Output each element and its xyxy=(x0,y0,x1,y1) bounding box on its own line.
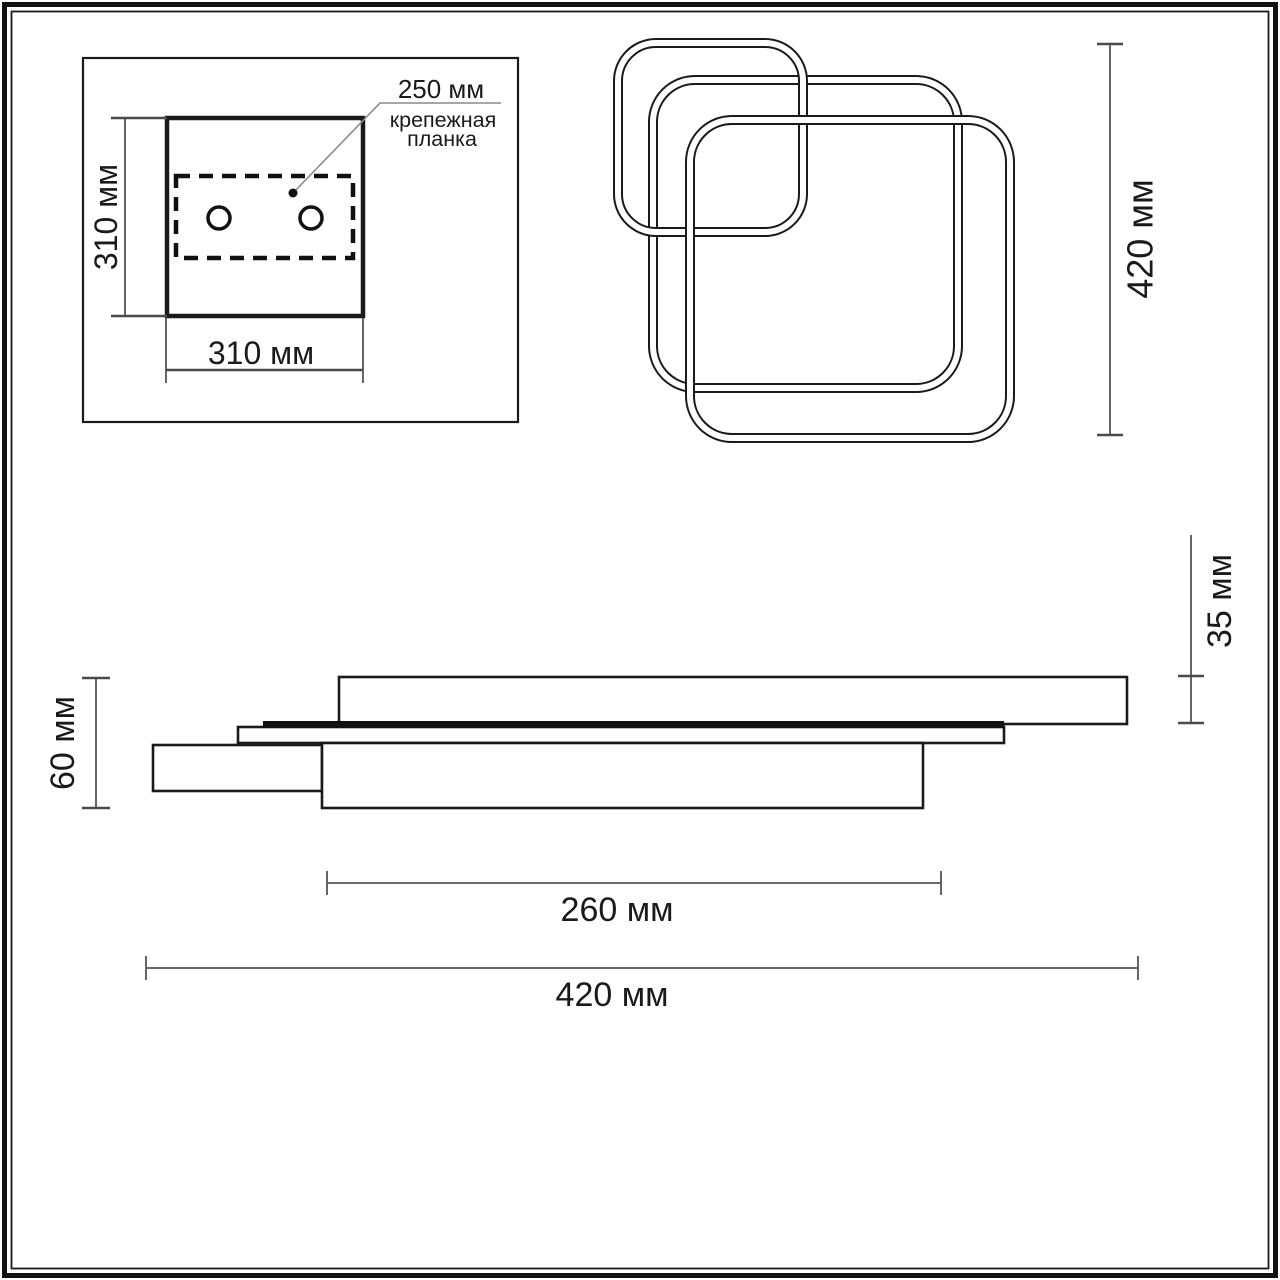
ring-small-tube xyxy=(618,43,803,232)
depth-label: 60 мм xyxy=(44,696,82,790)
side-thin-bar xyxy=(238,727,1004,743)
mounting-inset-panel: 250 мм крепежная планка 310 мм 310 мм xyxy=(83,58,518,422)
thickness-label: 35 мм xyxy=(1201,554,1239,648)
inner-width-label: 260 мм xyxy=(561,891,674,929)
canopy-width-label: 310 мм xyxy=(208,335,314,371)
screw-hole-left xyxy=(208,207,230,229)
side-top-plate xyxy=(339,677,1127,724)
overall-width-label: 420 мм xyxy=(556,976,669,1014)
canopy-height-label: 310 мм xyxy=(88,164,124,270)
screw-hole-right xyxy=(300,207,322,229)
fixture-height-label: 420 мм xyxy=(1120,179,1161,299)
fixture-side-view: 60 мм 35 мм 260 мм 420 мм xyxy=(44,535,1239,1014)
drawing-page: 250 мм крепежная планка 310 мм 310 мм 42… xyxy=(0,0,1280,1280)
ring-small-outline xyxy=(618,43,803,232)
canopy-square xyxy=(167,118,363,316)
side-led-strip xyxy=(263,721,1004,728)
side-bottom-plate xyxy=(322,743,923,808)
fixture-top-view: 420 мм xyxy=(618,43,1161,438)
side-left-block xyxy=(153,745,322,791)
mounting-plate-caption-line2: планка xyxy=(407,127,477,151)
technical-drawing: 250 мм крепежная планка 310 мм 310 мм 42… xyxy=(0,0,1280,1280)
callout-leader-dot xyxy=(289,189,298,198)
mounting-plate-width-label: 250 мм xyxy=(398,74,484,104)
